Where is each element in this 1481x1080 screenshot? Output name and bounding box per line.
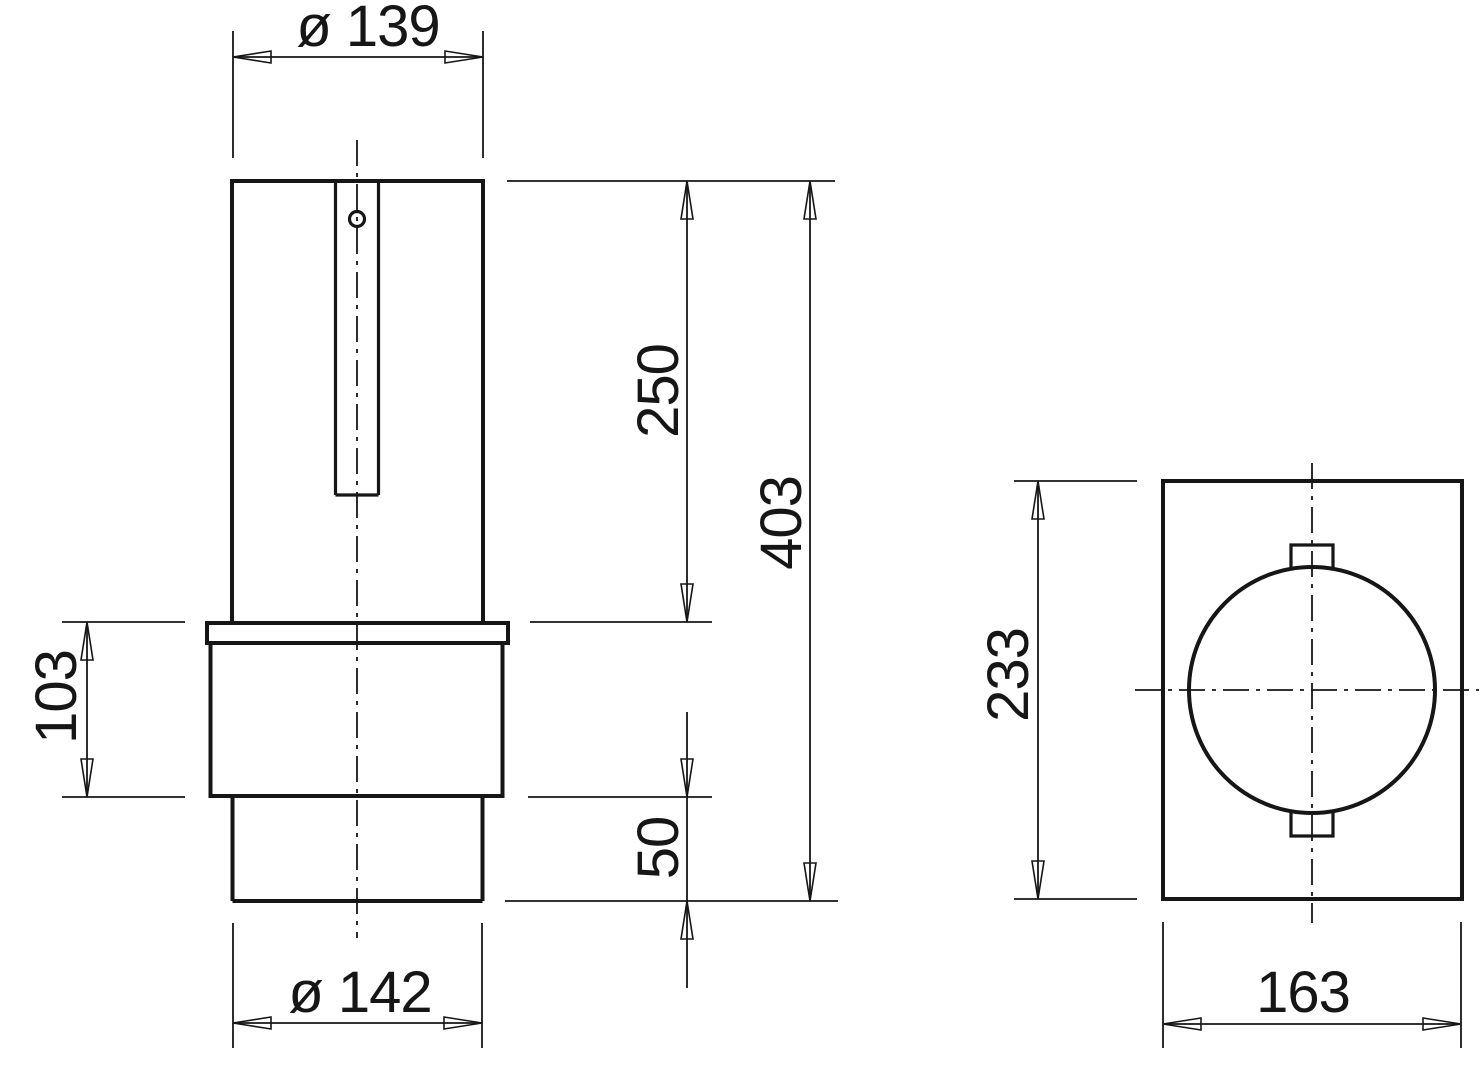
front-view <box>207 140 508 938</box>
dim-plate-height: 233 <box>976 481 1137 899</box>
dim-flange-length-label: 103 <box>24 650 89 744</box>
dim-flange-length: 103 <box>24 622 185 797</box>
dim-total-length-label: 403 <box>749 476 814 570</box>
dim-dia-bottom: ø 142 <box>233 923 482 1048</box>
dim-lower-length: 50 <box>626 712 693 988</box>
dim-dia-bottom-label: ø 142 <box>288 960 431 1025</box>
dim-plate-width-label: 163 <box>1256 960 1350 1025</box>
dim-upper-length-label: 250 <box>626 344 691 438</box>
dim-lower-length-label: 50 <box>626 817 691 880</box>
dim-plate-width: 163 <box>1163 922 1461 1048</box>
dim-total-length: 403 <box>749 181 816 901</box>
dim-plate-height-label: 233 <box>976 628 1041 722</box>
dim-dia-top: ø 139 <box>233 0 483 158</box>
drawing-canvas: ø 139 250 403 103 50 <box>0 0 1481 1080</box>
dim-upper-length: 250 <box>626 181 693 622</box>
technical-drawing: ø 139 250 403 103 50 <box>0 0 1481 1080</box>
dim-dia-top-label: ø 139 <box>296 0 439 59</box>
side-view <box>1135 463 1479 923</box>
